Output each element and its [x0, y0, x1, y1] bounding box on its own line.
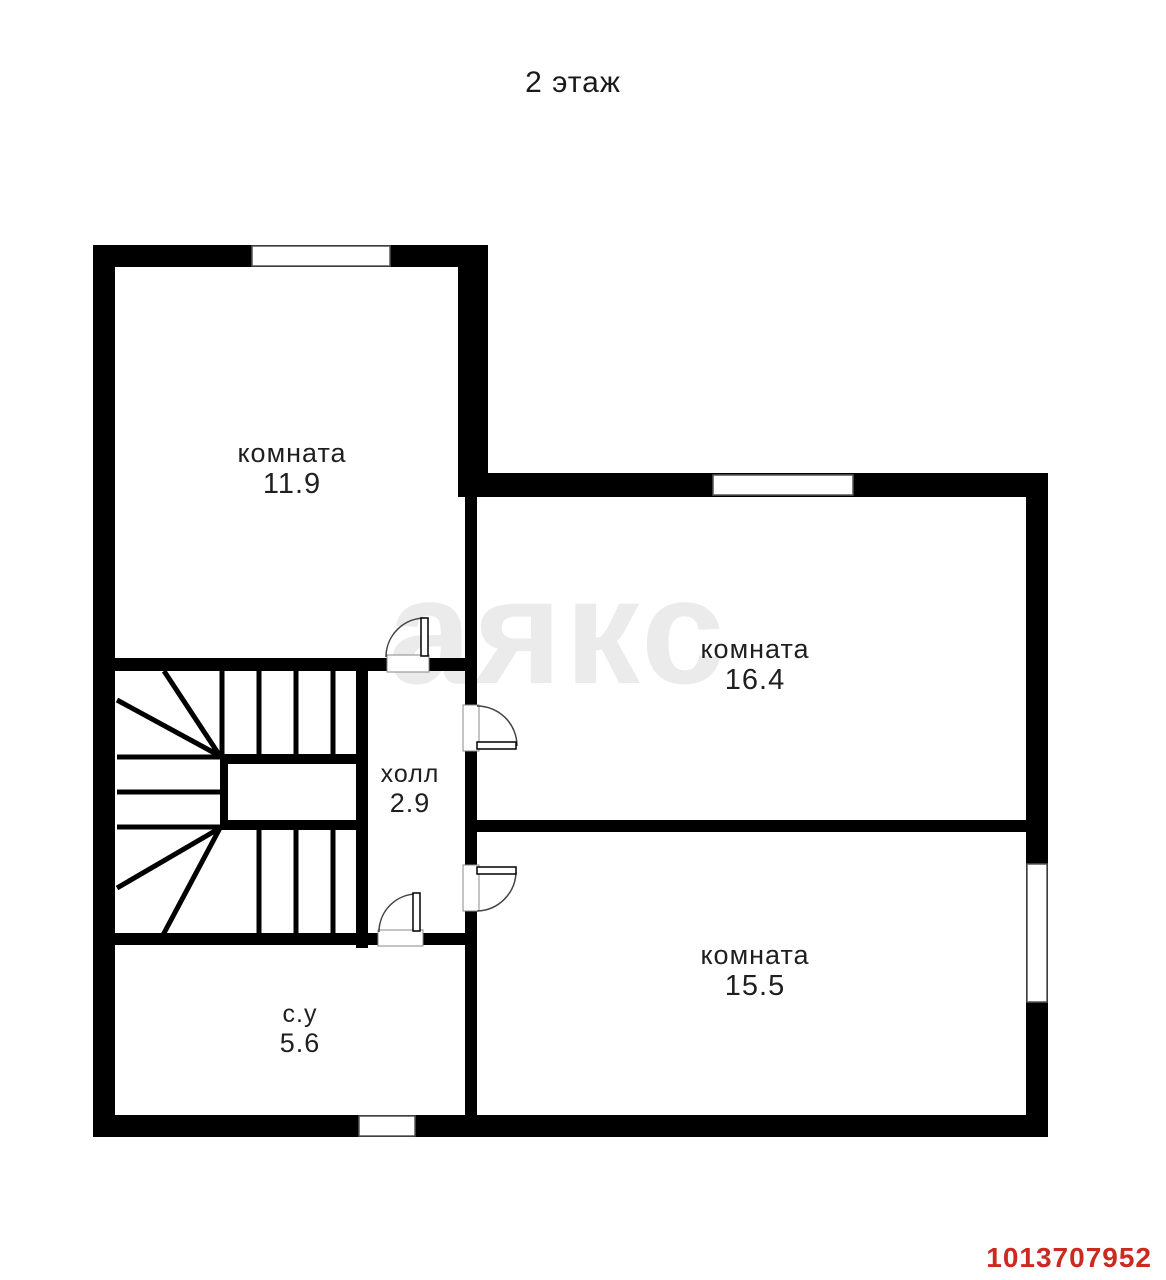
room-area: 2.9 — [381, 788, 440, 818]
room-name: с.у — [280, 1000, 321, 1028]
label-hall: холл 2.9 — [381, 760, 440, 818]
page-title: 2 этаж — [525, 66, 621, 100]
label-room-15-5: комната 15.5 — [700, 940, 809, 1002]
room-name: комната — [700, 940, 809, 970]
staircase — [117, 658, 368, 948]
window-room155-right — [1027, 864, 1047, 1002]
door-hall-room164 — [463, 705, 517, 751]
window-room164-top — [713, 475, 853, 495]
room-area: 15.5 — [700, 970, 809, 1002]
window-room119-top — [252, 246, 390, 266]
room-name: комната — [700, 634, 809, 664]
plan-lines-layer — [0, 0, 1166, 1280]
room-name: холл — [381, 760, 440, 788]
label-bathroom: с.у 5.6 — [280, 1000, 321, 1058]
listing-id: 1013707952 — [986, 1242, 1152, 1274]
door-hall-room155 — [463, 865, 516, 911]
room-name: комната — [237, 438, 346, 468]
window-bathroom-bottom — [359, 1116, 415, 1136]
label-room-16-4: комната 16.4 — [700, 634, 809, 696]
room-area: 16.4 — [700, 664, 809, 696]
door-hall-room119 — [386, 618, 429, 672]
room-area: 11.9 — [237, 468, 346, 500]
floor-plan: аякс 2 этаж — [0, 0, 1166, 1280]
door-hall-bathroom — [378, 893, 423, 946]
label-room-11-9: комната 11.9 — [237, 438, 346, 500]
room-area: 5.6 — [280, 1028, 321, 1058]
